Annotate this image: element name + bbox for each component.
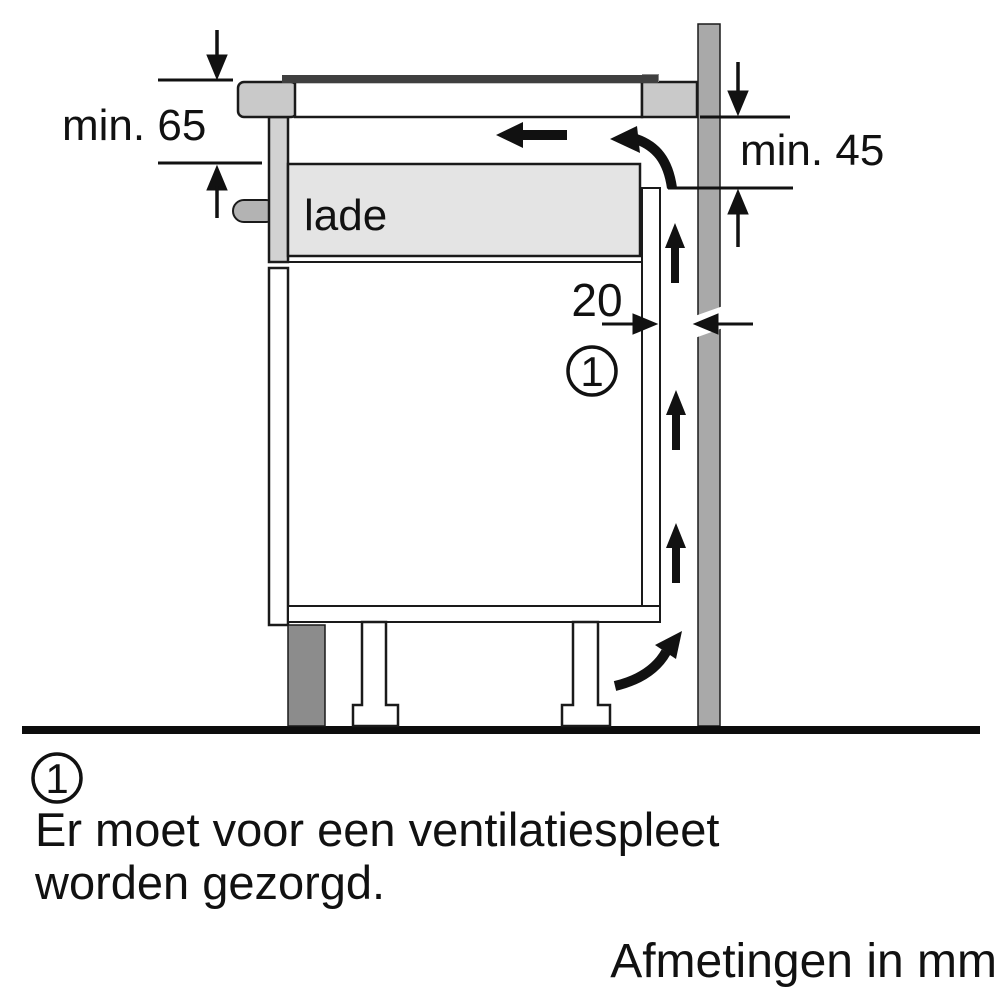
- airflow-up-arrow-3: [666, 523, 686, 583]
- airflow-curve-bottom: [615, 631, 682, 686]
- worktop-cooktop: [238, 74, 697, 117]
- footnote-line-1: Er moet voor een ventilatiespleet: [35, 803, 719, 856]
- airflow-curve-bottom-arc: [615, 652, 666, 686]
- label-min-45: min. 45: [740, 126, 884, 175]
- airflow-up-arrow-2-head: [666, 390, 686, 415]
- label-min-65: min. 65: [62, 101, 206, 150]
- dim65-arrow-down-head: [207, 55, 227, 79]
- airflow-up-arrow-2: [666, 390, 686, 450]
- drawer-front-panel: [269, 117, 288, 262]
- dim45-arrow-down-head: [728, 91, 748, 115]
- airflow-left-arrow: [496, 122, 567, 148]
- cabinet-foot-right: [562, 622, 610, 726]
- installation-diagram: min. 65 min. 45 20 1: [0, 0, 1000, 1000]
- airflow-up-arrow-1: [665, 223, 685, 283]
- installation-diagram-page: min. 65 min. 45 20 1: [0, 0, 1000, 1000]
- wall: [692, 24, 723, 726]
- footnote: 1 Er moet voor een ventilatiespleet word…: [33, 754, 719, 909]
- worktop-right-block: [642, 82, 697, 117]
- callout-1-drawing: 1: [568, 347, 616, 395]
- dimension-gap-20: [602, 314, 753, 334]
- floor-line: [22, 726, 980, 734]
- footnote-marker-number: 1: [45, 755, 68, 802]
- units-caption: Afmetingen in mm: [610, 935, 997, 988]
- airflow-up-arrow-3-shaft: [672, 545, 680, 583]
- footnote-line-2: worden gezorgd.: [34, 856, 385, 909]
- airflow-left-arrow-head: [496, 122, 523, 148]
- airflow-curve-top-head: [610, 126, 640, 153]
- label-gap-20: 20: [571, 274, 622, 326]
- airflow-curve-top-arc: [636, 139, 672, 188]
- cooktop-body: [295, 82, 642, 117]
- airflow-left-arrow-shaft: [520, 130, 567, 140]
- cabinet-foot-left: [353, 622, 398, 726]
- plinth: [288, 625, 325, 726]
- cabinet-bottom-panel: [288, 606, 660, 622]
- cabinet: [233, 117, 660, 726]
- airflow-up-arrow-1-head: [665, 223, 685, 248]
- airflow-up-arrow-1-shaft: [671, 245, 679, 283]
- callout-number: 1: [580, 348, 603, 395]
- rear-spacer-panel: [642, 188, 660, 606]
- airflow-up-arrow-2-shaft: [672, 412, 680, 450]
- airflow-up-arrow-3-head: [666, 523, 686, 548]
- cabinet-door-panel: [269, 268, 288, 625]
- label-drawer: lade: [304, 191, 387, 240]
- cooktop-glass-top: [282, 75, 658, 83]
- wall-upper: [698, 24, 720, 726]
- worktop-left-block: [238, 82, 297, 117]
